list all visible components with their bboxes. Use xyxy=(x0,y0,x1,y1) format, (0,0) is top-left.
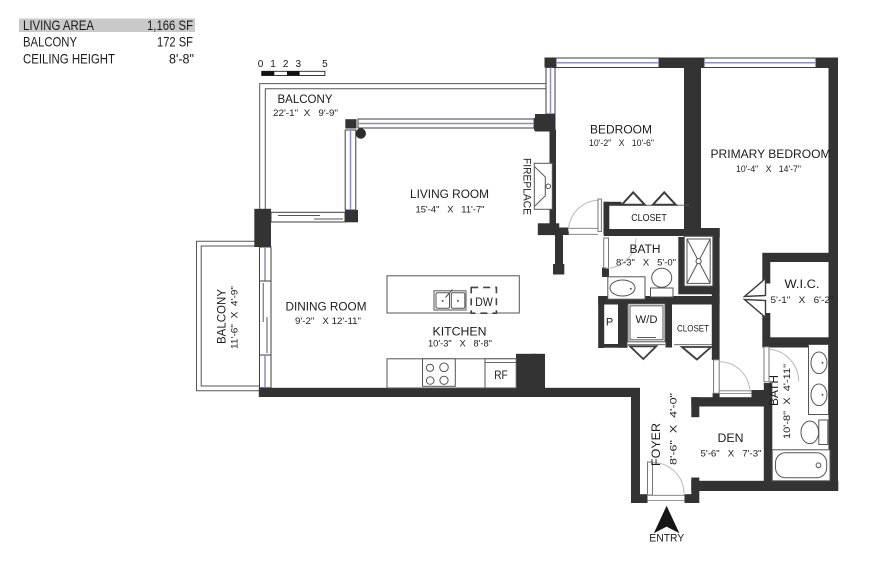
svg-text:8'-3" X 5'-0": 8'-3" X 5'-0" xyxy=(616,257,676,268)
svg-text:CEILING HEIGHT: CEILING HEIGHT xyxy=(23,50,115,66)
svg-text:1: 1 xyxy=(270,59,276,70)
svg-text:FOYER: FOYER xyxy=(651,423,663,466)
svg-text:22'-1" X 9'-9": 22'-1" X 9'-9" xyxy=(273,108,338,119)
svg-text:10'-8" X 4'-11": 10'-8" X 4'-11" xyxy=(782,364,793,439)
svg-text:FIREPLACE: FIREPLACE xyxy=(521,158,533,215)
svg-text:LIVING AREA: LIVING AREA xyxy=(23,17,95,33)
svg-text:5'-1" X 6'-2": 5'-1" X 6'-2" xyxy=(771,295,834,306)
svg-text:172 SF: 172 SF xyxy=(157,34,193,50)
svg-text:8'-8": 8'-8" xyxy=(169,50,194,66)
svg-text:1,166 SF: 1,166 SF xyxy=(147,17,193,33)
svg-text:9'-2" X 12'-11": 9'-2" X 12'-11" xyxy=(295,316,361,327)
svg-text:15'-4" X 11'-7": 15'-4" X 11'-7" xyxy=(416,205,485,216)
svg-text:ENTRY: ENTRY xyxy=(649,533,685,545)
svg-text:BALCONY: BALCONY xyxy=(278,94,333,106)
svg-text:BEDROOM: BEDROOM xyxy=(590,124,652,136)
svg-text:10'-2" X 10'-6": 10'-2" X 10'-6" xyxy=(589,138,654,149)
svg-text:RF: RF xyxy=(494,368,508,382)
svg-text:BATH: BATH xyxy=(769,375,781,406)
svg-text:0: 0 xyxy=(258,59,264,70)
svg-text:DEN: DEN xyxy=(718,433,744,445)
svg-text:BALCONY: BALCONY xyxy=(23,34,78,50)
svg-text:PRIMARY BEDROOM: PRIMARY BEDROOM xyxy=(711,149,831,161)
svg-text:5: 5 xyxy=(322,59,328,70)
svg-text:KITCHEN: KITCHEN xyxy=(433,327,487,339)
svg-text:W.I.C.: W.I.C. xyxy=(785,277,820,291)
svg-text:DINING ROOM: DINING ROOM xyxy=(286,301,367,313)
svg-text:10'-3" X 8'-8": 10'-3" X 8'-8" xyxy=(428,338,492,349)
svg-text:8'-6" X 4'-0": 8'-6" X 4'-0" xyxy=(669,393,680,465)
svg-text:LIVING ROOM: LIVING ROOM xyxy=(410,189,489,201)
svg-text:P: P xyxy=(606,317,613,329)
svg-text:5'-6" X 7'-3": 5'-6" X 7'-3" xyxy=(701,448,762,459)
svg-text:CLOSET: CLOSET xyxy=(677,323,709,334)
svg-text:11'-6" X 4'-9": 11'-6" X 4'-9" xyxy=(230,286,241,349)
svg-text:CLOSET: CLOSET xyxy=(631,213,667,224)
svg-text:3: 3 xyxy=(296,59,302,70)
svg-text:2: 2 xyxy=(283,59,289,70)
svg-text:DW: DW xyxy=(475,297,493,309)
svg-text:W/D: W/D xyxy=(636,314,658,326)
svg-text:10'-4" X 14'-7": 10'-4" X 14'-7" xyxy=(736,164,801,175)
svg-text:BATH: BATH xyxy=(630,244,661,256)
svg-text:BALCONY: BALCONY xyxy=(217,289,229,344)
